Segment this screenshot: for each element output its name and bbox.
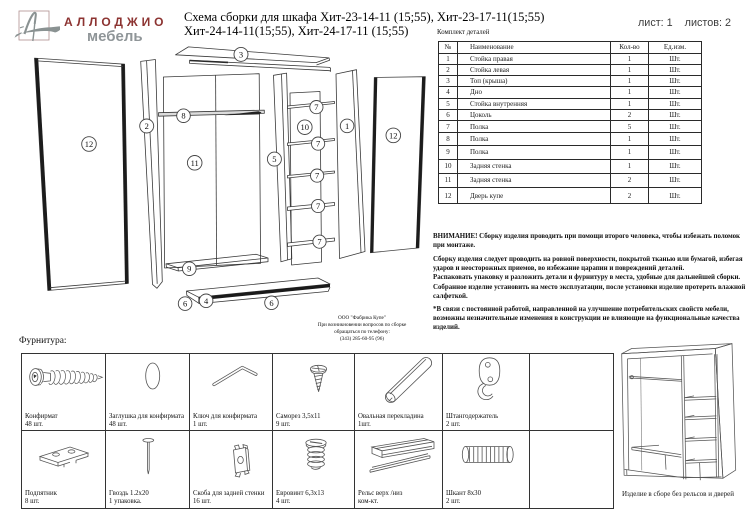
svg-text:12: 12: [389, 130, 398, 140]
svg-text:3: 3: [239, 49, 243, 59]
svg-text:7: 7: [315, 171, 319, 181]
svg-text:6: 6: [269, 298, 273, 308]
svg-text:9: 9: [187, 264, 191, 274]
svg-text:7: 7: [317, 237, 321, 247]
svg-text:6: 6: [183, 299, 187, 309]
svg-text:1: 1: [345, 121, 349, 131]
svg-text:2: 2: [145, 121, 149, 131]
svg-text:5: 5: [272, 154, 276, 164]
svg-text:11: 11: [191, 158, 199, 168]
svg-text:7: 7: [314, 102, 318, 112]
svg-text:10: 10: [301, 122, 310, 132]
svg-text:12: 12: [85, 139, 94, 149]
svg-text:7: 7: [316, 201, 320, 211]
svg-text:4: 4: [204, 296, 209, 306]
svg-text:8: 8: [181, 111, 185, 121]
svg-text:7: 7: [316, 139, 320, 149]
